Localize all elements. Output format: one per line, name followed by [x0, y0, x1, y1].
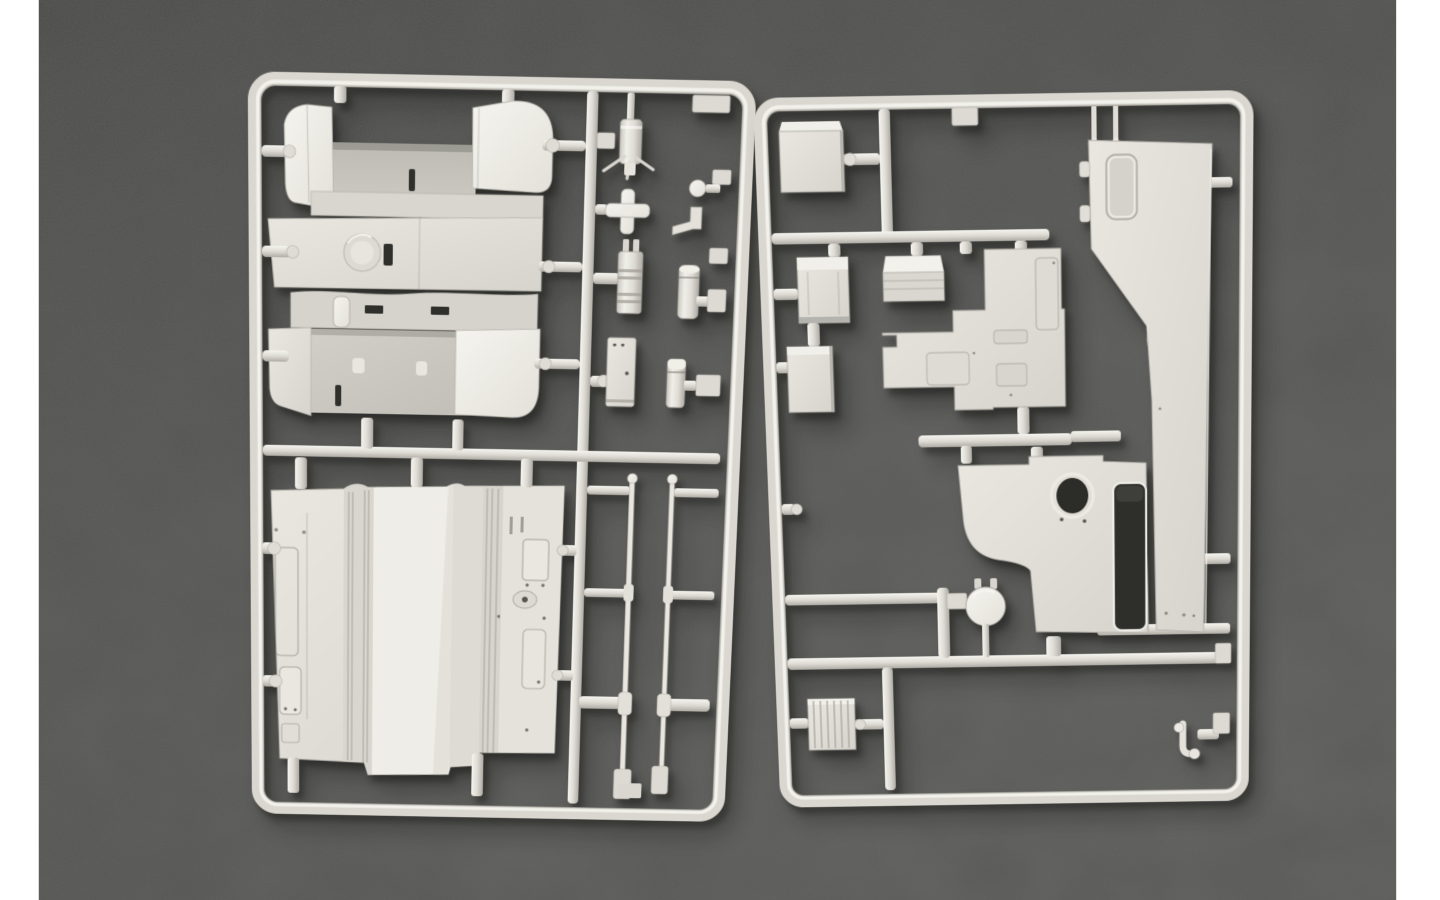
sprue-right	[752, 89, 1255, 809]
bottom-bar-tab	[618, 783, 642, 798]
cab-rear-slot	[409, 169, 415, 191]
canister-tall-part	[677, 265, 727, 319]
bed-floor-part	[262, 454, 579, 798]
rod-left-part	[613, 473, 642, 799]
plug-block-part	[592, 239, 643, 314]
ribbed-crate-part	[807, 698, 866, 750]
page	[0, 0, 1440, 900]
small-parts-column	[590, 92, 735, 408]
elbow-and-knob-parts	[671, 169, 731, 264]
cab-rear-sill	[311, 191, 543, 220]
panel-window	[1106, 154, 1137, 219]
cab-lower-left-flap	[268, 327, 311, 416]
rod-right-part	[651, 474, 680, 794]
cab-shell-part	[261, 96, 587, 453]
rod-connectors	[579, 485, 719, 711]
corner-tab	[692, 95, 730, 113]
cab-front-band	[291, 289, 538, 332]
felt-background	[38, 0, 1397, 900]
small-box-part	[786, 323, 834, 413]
cab-roof-panel	[268, 212, 543, 292]
stowage-box-part	[779, 120, 881, 192]
panel-peg	[1113, 106, 1118, 141]
junction-box-part	[590, 337, 637, 407]
top-tab-part	[952, 107, 978, 125]
runner-block	[597, 133, 615, 149]
wide-box-part	[882, 255, 944, 301]
cross-coupling-part	[595, 188, 651, 234]
canister-short-part	[666, 359, 721, 408]
bulkhead-opening	[1113, 483, 1146, 631]
panel-peg	[1091, 106, 1096, 141]
cab-front-recess	[304, 329, 473, 416]
antenna-rods	[576, 473, 719, 801]
cab-lower-right-flap	[455, 327, 540, 418]
cab-pin	[333, 296, 349, 327]
roof-slot	[384, 244, 393, 266]
cab-right-flap	[471, 100, 553, 193]
sprue-left	[247, 70, 758, 823]
ribbed-box-part	[797, 257, 850, 323]
ball-valve-part	[947, 578, 1007, 658]
tow-hook-part	[1174, 723, 1200, 760]
